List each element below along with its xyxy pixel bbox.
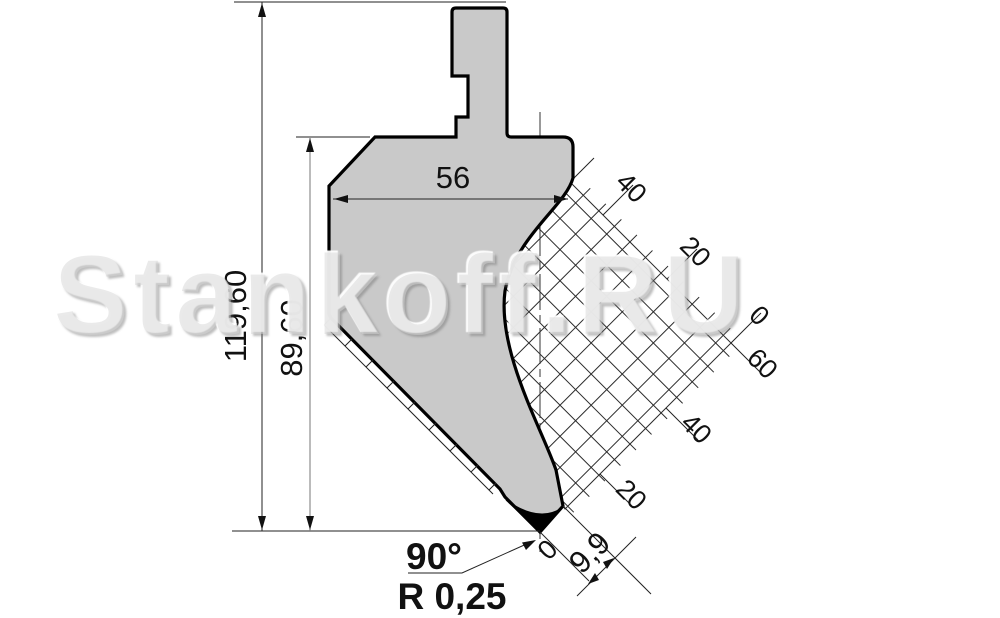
- grid-label-lower-60: 60: [741, 342, 783, 384]
- grid-label-upper-0: 0: [743, 300, 775, 332]
- total-height-label: 119,60: [218, 270, 253, 363]
- tip-radius-label: R 0,25: [397, 576, 506, 617]
- working-height-arrow-top: [306, 138, 314, 152]
- technical-drawing-canvas: 40 20 0 60 40 20 0 9,9: [0, 0, 1000, 618]
- working-height-label: 89,60: [274, 299, 309, 377]
- width-label: 56: [436, 160, 470, 195]
- grid-label-lower-40: 40: [675, 407, 717, 449]
- total-height-arrow-bottom: [258, 516, 266, 530]
- tip-angle-label: 90°: [406, 536, 462, 577]
- grid-label-upper-40: 40: [610, 166, 652, 208]
- working-height-arrow-bottom: [306, 516, 314, 530]
- total-height-arrow-top: [258, 3, 266, 17]
- punch-profile-drawing: 40 20 0 60 40 20 0 9,9: [0, 0, 1000, 618]
- tip-zero-label: 0: [532, 534, 564, 566]
- tip-offset-label: 9,9: [562, 525, 617, 580]
- tip-callout: 90° R 0,25: [397, 536, 536, 617]
- grid-label-lower-20: 20: [610, 473, 652, 515]
- grid-label-upper-20: 20: [674, 230, 716, 272]
